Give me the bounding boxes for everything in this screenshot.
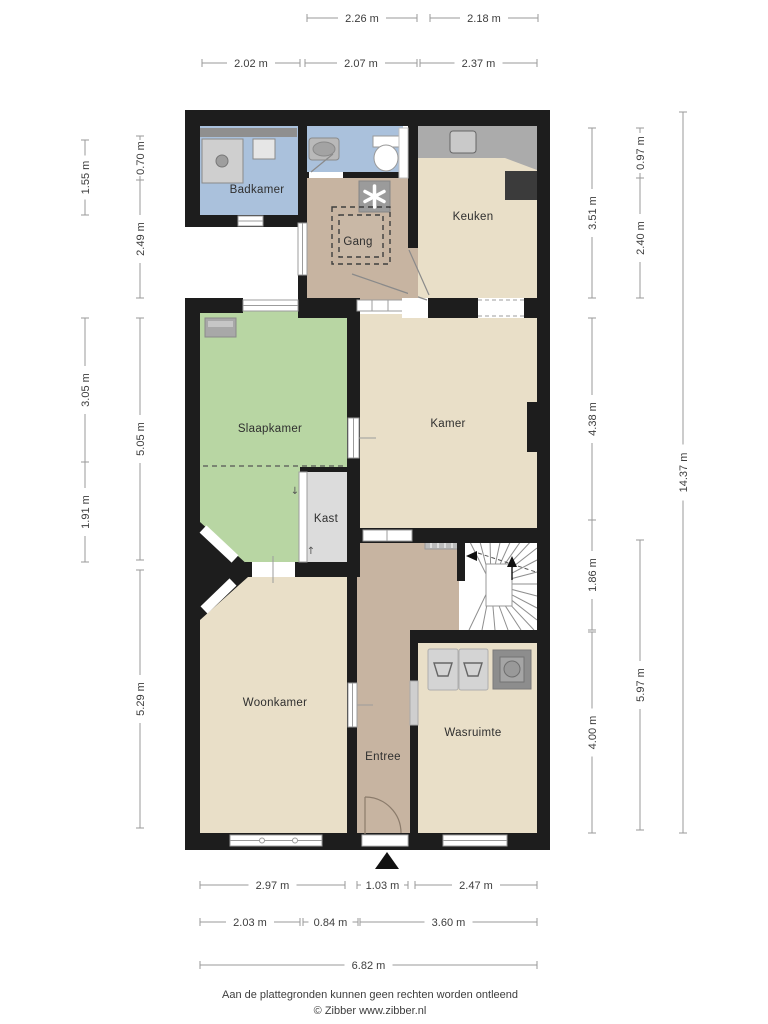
wall-segment [408,126,418,248]
svg-text:2.49 m: 2.49 m [135,222,147,256]
dimension-left: 0.70 m [135,136,147,180]
sliding-door-kast [299,472,307,562]
room-label-badkamer: Badkamer [230,184,285,196]
dimension-bottom: 3.60 m [360,917,537,929]
dimension-bottom: 2.03 m [200,917,300,929]
svg-text:14.37 m: 14.37 m [678,453,690,493]
svg-text:3.05 m: 3.05 m [80,373,92,407]
dimension-left: 2.49 m [135,180,147,298]
door-gang-kamer [402,298,428,318]
svg-text:0.70 m: 0.70 m [135,141,147,175]
footer-disclaimer: Aan de plattegronden kunnen geen rechten… [222,989,518,1001]
dimension-bottom: 2.97 m [200,880,345,892]
wall-segment [300,467,350,472]
svg-text:3.60 m: 3.60 m [432,917,466,929]
door-toilet-gang [309,172,343,178]
boiler-icon [493,650,531,689]
washing-machine-icon [428,649,458,690]
window-kamer-entree [363,530,412,541]
room-label-kamer: Kamer [430,418,465,430]
room-label-wasruimte: Wasruimte [444,727,501,739]
room-label-kast: Kast [314,513,339,525]
dimension-bottom: 0.84 m [303,917,358,929]
wall-segment [185,110,550,126]
svg-text:2.03 m: 2.03 m [233,917,267,929]
sliding-door-arrow-icon: ↑ [307,546,315,557]
dimension-top: 2.07 m [305,58,417,70]
footer-credit: © Zibber www.zibber.nl [314,1005,427,1017]
svg-text:1.55 m: 1.55 m [80,161,92,195]
svg-text:5.05 m: 5.05 m [135,422,147,456]
svg-text:0.84 m: 0.84 m [314,917,348,929]
wall-segment [457,543,465,581]
dimension-right: 3.51 m [587,128,599,298]
dresser-top-icon [208,321,233,327]
room-label-entree: Entree [365,751,401,763]
kitchen-sink-icon [450,131,476,153]
room-label-gang: Gang [343,236,372,248]
window-wasruimte [443,835,507,846]
room-label-slaapkamer: Slaapkamer [238,423,302,435]
wall-segment [410,643,418,835]
dimension-right: 1.86 m [587,520,599,630]
dimension-top: 2.18 m [430,13,538,25]
bath-rail-icon [200,128,297,137]
dimension-bottom: 2.47 m [415,880,537,892]
washbasin-bowl-icon [313,142,335,156]
stairs-newel [486,564,512,606]
svg-text:1.86 m: 1.86 m [587,558,599,592]
window-gang-kamer [357,300,403,311]
dimension-left: 1.55 m [80,140,92,215]
dimension-top: 2.02 m [202,58,300,70]
dimension-left: 3.05 m [80,318,92,462]
opening-keuken-kamer [478,298,524,318]
door-toilet-keuken [399,128,408,178]
toilet-bowl-icon [374,145,398,171]
room-label-keuken: Keuken [453,211,494,223]
svg-text:5.97 m: 5.97 m [635,668,647,702]
dimension-top: 2.26 m [307,13,417,25]
dimension-right: 0.97 m [635,128,647,178]
svg-text:2.47 m: 2.47 m [459,880,493,892]
sliding-door-arrow-icon: ↓ [291,486,299,497]
svg-text:3.51 m: 3.51 m [587,196,599,230]
dimension-left: 1.91 m [80,462,92,562]
footer: Aan de plattegronden kunnen geen rechten… [222,989,518,1017]
dimension-right: 4.38 m [587,318,599,520]
svg-text:2.37 m: 2.37 m [462,58,496,70]
kitchen-chimney-block [505,171,537,200]
floor-plan: ↓ ↑ [0,0,768,1024]
door-entree-wasruimte [410,681,418,725]
svg-text:2.18 m: 2.18 m [467,13,501,25]
svg-text:2.02 m: 2.02 m [234,58,268,70]
svg-text:2.40 m: 2.40 m [635,221,647,255]
svg-text:2.26 m: 2.26 m [345,13,379,25]
dimension-bottom: 6.82 m [200,960,537,972]
door-gang-keuken [408,248,418,298]
entrance-marker-icon [375,852,399,869]
svg-text:1.91 m: 1.91 m [80,495,92,529]
dimension-right: 2.40 m [635,178,647,298]
chimney-bump [527,402,537,452]
dimension-bottom: 1.03 m [357,880,408,892]
dimension-top: 2.37 m [420,58,537,70]
dimension-right: 14.37 m [678,112,690,833]
wall-segment [537,110,550,850]
svg-text:5.29 m: 5.29 m [135,682,147,716]
svg-text:1.03 m: 1.03 m [366,880,400,892]
window-woonkamer [230,835,322,846]
dimension-left: 5.05 m [135,318,147,560]
room-label-woonkamer: Woonkamer [243,697,307,709]
window-gang [298,223,307,275]
svg-text:2.97 m: 2.97 m [256,880,290,892]
wall-segment [410,630,540,643]
window-slaapkamer [243,300,298,311]
svg-text:4.38 m: 4.38 m [587,402,599,436]
dresser-icon [205,318,236,337]
svg-text:6.82 m: 6.82 m [352,960,386,972]
svg-text:4.00 m: 4.00 m [587,716,599,750]
dimension-left: 5.29 m [135,570,147,828]
window-badkamer [238,216,263,226]
shower-drain-icon [216,155,228,167]
svg-text:0.97 m: 0.97 m [635,136,647,170]
dimension-right: 5.97 m [635,540,647,830]
wall-segment [185,110,200,227]
bath-sink-icon [253,139,275,159]
svg-text:2.07 m: 2.07 m [344,58,378,70]
dimension-right: 4.00 m [587,632,599,833]
washing-machine-icon [459,649,488,690]
wall-segment [185,298,200,850]
wall-segment [428,298,478,318]
